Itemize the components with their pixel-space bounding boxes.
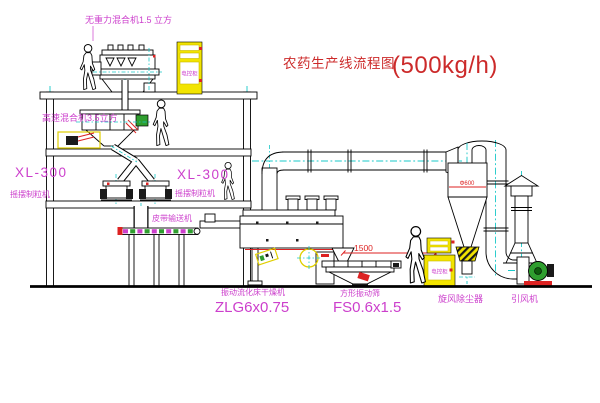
cyclone-cone [448,197,487,247]
roof-beam [40,92,257,99]
granulator-right [139,174,172,204]
cyclone-cylinder [448,163,487,197]
conveyor-pulley [194,228,200,234]
dryer-port [307,199,317,210]
fan-hub [535,268,542,275]
label-granulator-right-name: 摇摆制粒机 [175,188,215,198]
riser-duct [262,168,277,212]
cyclone-dim-text: Φ600 [460,181,475,187]
dryer-tag [256,248,278,265]
dim-text-1500: 1500 [354,243,373,253]
granulator-left [100,174,133,204]
cabinet-vent [180,45,199,51]
belt-segment [123,229,128,233]
label-granulator-right-model: XL-300 [177,167,230,182]
belt-segment [145,229,150,233]
mixer-nozzle [128,45,133,50]
belt-segment [152,229,157,233]
y-duct-right-inner [136,161,152,181]
granulator-motor [139,189,146,199]
exhaust-stack [503,171,540,266]
y-duct-left-inner [120,161,136,181]
stack-cap-ring [511,186,532,196]
flow-diagram-canvas: 电控柜 [0,0,600,403]
label-granulator-left-model: XL-300 [15,165,68,180]
label-high-speed-mixer: 高速混合机3.5立方 [42,112,118,123]
belt-segment [188,229,193,233]
exhaust-duct [252,145,462,215]
fan-motor [547,264,554,277]
belt-line [78,137,94,141]
hs-mixer-motor [136,115,148,126]
person-figure-floor2 [153,100,169,146]
cabinet-text: 电控柜 [431,268,448,276]
conveyor-leg [154,235,159,287]
indicator-light [199,79,202,82]
rotary-valve [456,247,479,261]
control-cabinet-top: 电控柜 [177,42,202,94]
person-figure-roof [80,44,96,89]
dryer-port [288,199,298,210]
elbow-inner [277,170,284,174]
granulator-body [145,186,166,198]
cabinet-text: 电控柜 [181,70,198,78]
hs-mixer-cone [118,130,134,146]
tag-mark [265,254,269,258]
spout-dark [393,263,399,267]
pump-motor [66,136,78,145]
mixer-outlet-flange [144,83,155,92]
conveyor-leg [179,235,184,287]
bolt-dot [266,239,269,242]
conveyor-leg [129,235,134,287]
granulator-motor [126,189,133,199]
label-zero-gravity-mixer: 无重力混合机1.5 立方 [85,14,172,25]
cabinet-vent [430,241,448,245]
pump-frame [58,132,100,148]
cabinet-vent [430,247,448,251]
belt-segment [137,229,142,233]
conveyor-drive [118,227,123,235]
dryer-body [240,216,343,248]
cabinet-vent [180,53,199,59]
bolt-dot [256,222,259,225]
drawing-title: 农药生产线流程图 (500kg/h) [283,52,498,79]
mixer-leg [102,79,112,92]
label-sieve-name: 方形振动筛 [340,288,380,298]
dryer-lid [243,210,335,216]
label-cyclone: 旋风除尘器 [438,293,483,304]
stack-rain-cap [505,176,538,187]
label-sieve-model: FS0.6x1.5 [333,299,401,316]
mixer-nozzle [139,45,144,50]
red-marker [146,183,149,186]
bolt-dot [286,222,289,225]
elbow-outer [486,252,519,279]
indicator-light [199,47,202,50]
indicator-light [452,241,455,244]
mixer-nozzle [118,45,123,50]
belt-segment [130,229,135,233]
tag-mark [259,255,264,261]
label-granulator-left-name: 摇摆制粒机 [10,189,50,199]
induced-draft-fan [517,257,554,287]
vibration-mount [321,254,329,257]
granulator-body [106,186,127,198]
belt-segment [159,229,164,233]
cyclone-discharge-pipe [462,261,472,274]
fan-inlet-box [517,257,529,284]
indicator-light [450,269,453,272]
stack-body [515,196,528,243]
cad-drawing-page: 电控柜 [0,0,600,403]
bolt-dot [316,222,319,225]
granulator-motor [165,189,172,199]
chute-flange [205,214,215,222]
dryer-port [326,199,336,210]
red-marker [107,183,110,186]
label-dryer-name: 振动流化床干燥机 [221,287,285,297]
ubend-inner [472,146,486,151]
belt-segment [173,229,178,233]
sieve-deck2 [326,267,394,272]
label-dryer-model: ZLG6x0.75 [215,299,289,316]
control-cabinet-right: 电控柜 [424,238,455,286]
zero-gravity-mixer [92,45,162,114]
label-fan: 引风机 [511,293,538,304]
belt-segment [166,229,171,233]
tag-mark [271,252,273,259]
bolt-dot [296,239,299,242]
label-belt-conveyor: 皮带输送机 [152,213,192,223]
floor2-beam [46,149,251,156]
granulator-motor [100,189,107,199]
mixer-top-rim [102,50,153,55]
mixer-nozzle [108,45,113,50]
title-text: 农药生产线流程图 [283,56,395,71]
red-marker [153,55,156,58]
sieve-deck [322,261,398,267]
belt-segment [181,229,186,233]
person-figure-ground [406,227,425,283]
dryer-foot [248,281,262,285]
right-column [244,92,251,286]
title-capacity: (500kg/h) [392,52,498,79]
